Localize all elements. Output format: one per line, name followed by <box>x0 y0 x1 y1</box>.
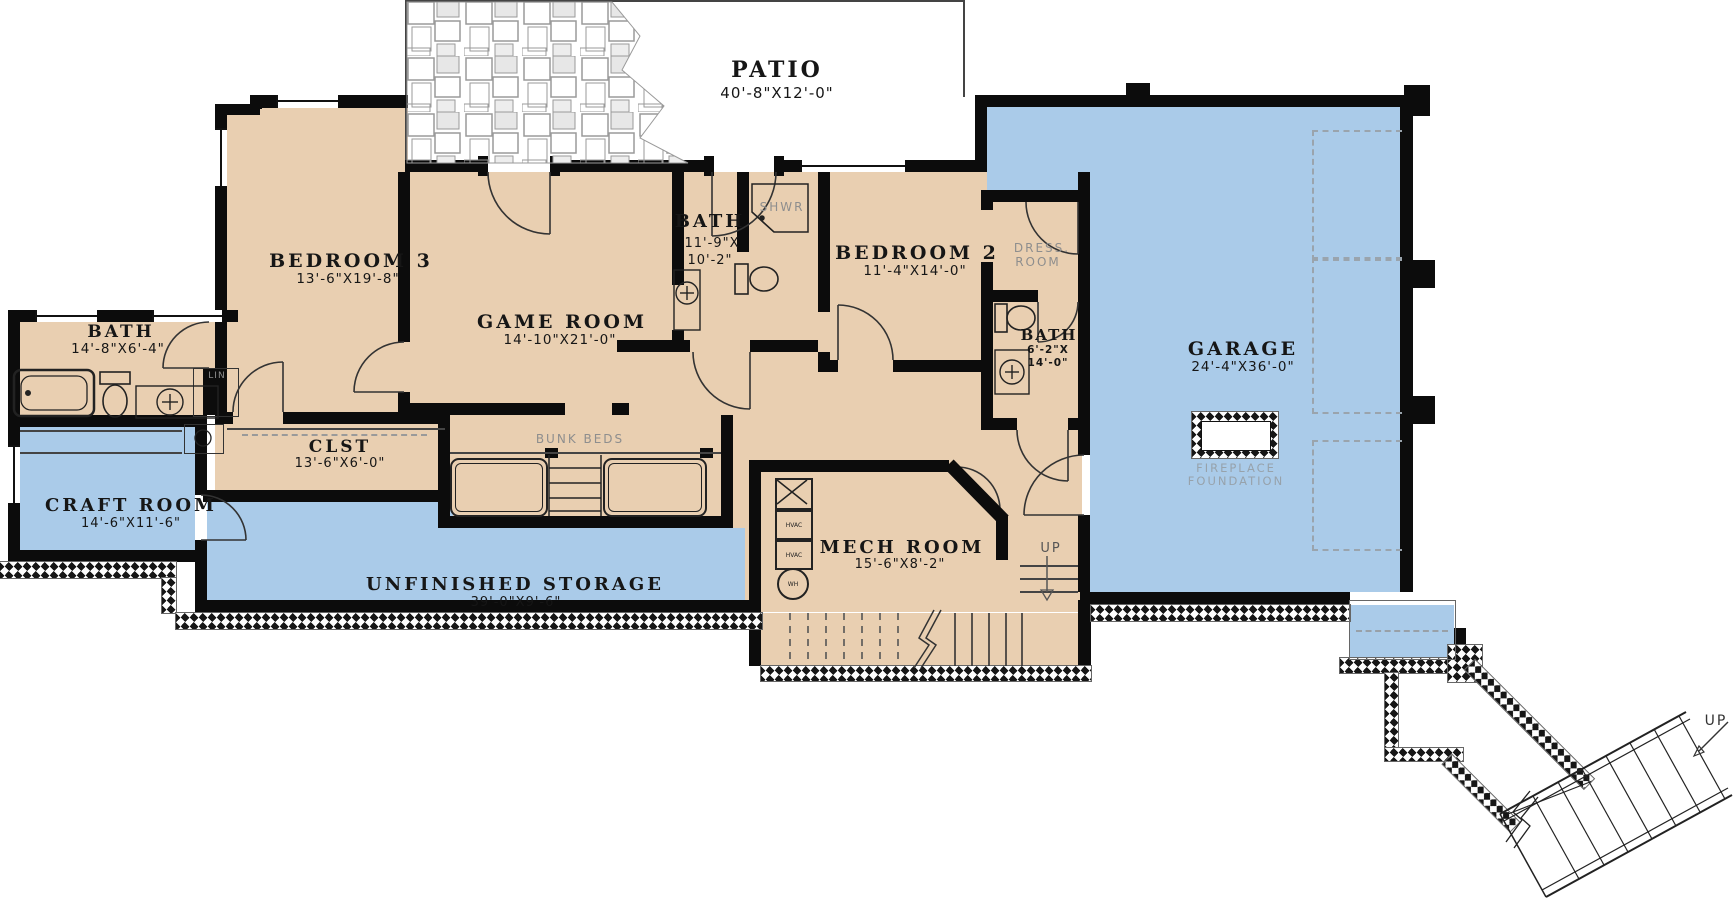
stair-treads <box>955 613 1022 666</box>
label-linen: LIN <box>208 371 225 381</box>
door-arc-bedroom3-game <box>354 342 404 392</box>
label-bunk-beds: BUNK BEDS <box>536 432 624 446</box>
room-dims-bath-right-2: 14'-0" <box>1028 357 1069 369</box>
vanity-sink <box>995 350 1029 394</box>
label-dress-room-2: ROOM <box>1015 255 1061 269</box>
up-arrow-interior <box>1041 556 1053 600</box>
plan-linework <box>0 0 1734 904</box>
room-label-craft-room: CRAFT ROOM <box>45 495 217 516</box>
label-fireplace-1: FIREPLACE <box>1196 461 1276 475</box>
door-arc-bedroom3-hall <box>233 362 283 412</box>
room-label-bath-right: BATH <box>1021 326 1078 344</box>
door-swings <box>163 172 1084 540</box>
door-arc-landing <box>1017 430 1068 481</box>
room-dims-bath-right-1: 6'-2"X <box>1027 344 1069 356</box>
vanity-sink <box>136 386 218 418</box>
room-dims-patio: 40'-8"X12'-0" <box>720 84 833 102</box>
vanity-sink <box>674 270 700 330</box>
label-shower: SHWR <box>760 200 805 214</box>
bathtub <box>14 370 94 416</box>
craft-sink <box>195 430 211 446</box>
room-label-game-room: GAME ROOM <box>477 311 647 333</box>
room-dims-bath-left: 14'-8"X6'-4" <box>71 341 165 357</box>
room-dims-bedroom3: 13'-6"X19'-8" <box>296 271 399 287</box>
patio-flagstone-area <box>407 2 688 163</box>
room-dims-craft-room: 14'-6"X11'-6" <box>81 516 181 531</box>
stair-break-line <box>914 610 941 668</box>
floor-plan: HVAC HVAC WH <box>0 0 1734 904</box>
room-dims-storage: 39'-0"X9'-6" <box>471 595 562 610</box>
room-label-bath-center: BATH <box>675 211 746 232</box>
label-up-interior: UP <box>1040 541 1061 556</box>
room-label-garage: GARAGE <box>1188 338 1298 360</box>
label-dress-room-1: DRESS. <box>1014 241 1070 255</box>
room-label-mech-room: MECH ROOM <box>820 537 985 558</box>
door-arc-garage-landing <box>1024 455 1084 515</box>
room-dims-closet: 13'-6"X6'-0" <box>295 456 386 471</box>
room-dims-game-room: 14'-10"X21'-0" <box>504 332 617 348</box>
stair-treads-dashed <box>790 613 898 664</box>
room-dims-bath-center-1: 11'-9"X <box>685 236 740 251</box>
door-arc-bedroom2 <box>838 305 893 360</box>
room-label-bedroom3: BEDROOM 3 <box>269 250 433 272</box>
door-arc-patio-left <box>488 172 550 234</box>
label-fireplace-2: FOUNDATION <box>1188 474 1284 488</box>
room-label-bedroom2: BEDROOM 2 <box>835 242 999 264</box>
room-label-patio: PATIO <box>731 57 823 83</box>
toilet <box>735 264 778 294</box>
mech-box-x <box>777 480 807 504</box>
toilet <box>100 372 130 417</box>
room-label-bath-left: BATH <box>87 322 154 342</box>
room-dims-mech-room: 15'-6"X8'-2" <box>855 557 946 572</box>
door-arc-hall <box>693 352 750 409</box>
room-dims-bath-center-2: 10'-2" <box>687 253 732 268</box>
room-label-closet: CLST <box>309 437 371 457</box>
room-dims-garage: 24'-4"X36'-0" <box>1191 359 1294 375</box>
bunk-ladder <box>549 455 601 516</box>
room-label-storage: UNFINISHED STORAGE <box>366 574 664 595</box>
room-dims-bedroom2: 11'-4"X14'-0" <box>863 263 966 279</box>
exterior-stair <box>1500 712 1732 897</box>
door-arc-bath-left <box>163 322 209 368</box>
label-up-exterior: UP <box>1705 713 1728 729</box>
